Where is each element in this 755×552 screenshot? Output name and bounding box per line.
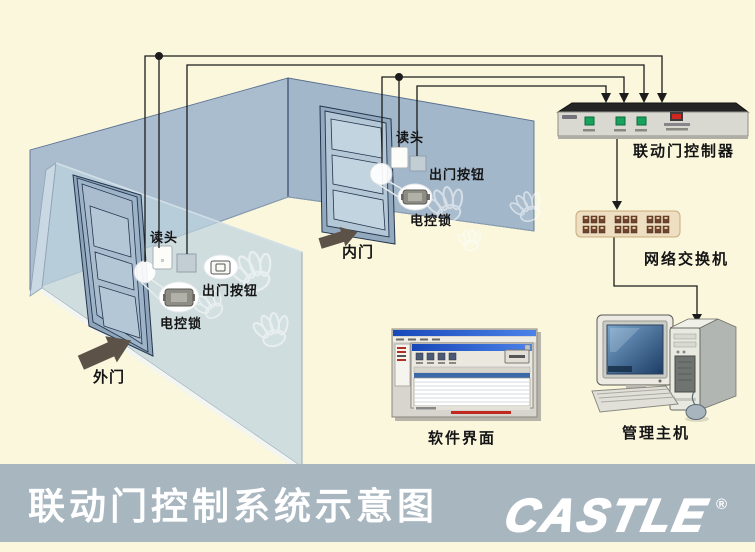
- switch-label: 网络交换机: [644, 248, 729, 269]
- inner-lock-bubble: [398, 184, 432, 210]
- software-label: 软件界面: [428, 427, 496, 448]
- inner-reader-label: 读头: [396, 127, 424, 146]
- inner-exit-button-label: 出门按钮: [429, 164, 485, 183]
- inner-door-label: 内门: [342, 241, 374, 262]
- outer-exit-button-device: [177, 254, 196, 272]
- outer-door-label: 外门: [93, 366, 125, 387]
- controller-label: 联动门控制器: [633, 140, 735, 161]
- brand-logo-text: CASTLE: [500, 488, 713, 542]
- outer-reader-label: 读头: [150, 227, 178, 246]
- network-switch-device: [576, 211, 680, 237]
- inner-lock-label: 电控锁: [410, 210, 452, 229]
- outer-exit-button-bubble: [204, 255, 238, 279]
- software-window: [392, 329, 541, 421]
- outer-exit-button-label: 出门按钮: [202, 280, 258, 299]
- inner-reader-device: [391, 147, 408, 168]
- diagram-stage: 读头 出门按钮 电控锁 读头 出门按钮 电控锁 内门 外门 联动门控制器 网络交…: [0, 0, 755, 552]
- outer-reader-device: [153, 246, 172, 269]
- door-controller-device: [558, 103, 748, 139]
- outer-lock-label: 电控锁: [160, 313, 202, 332]
- brand-logo: CASTLE®: [506, 488, 719, 542]
- host-label: 管理主机: [622, 422, 690, 443]
- diagram-title: 联动门控制系统示意图: [28, 488, 438, 527]
- registered-trademark-icon: ®: [716, 496, 727, 513]
- management-host-computer: [592, 315, 736, 422]
- outer-lock-bubble: [159, 282, 199, 312]
- inner-exit-button-device: [410, 156, 426, 171]
- footer-banner: 联动门控制系统示意图 CASTLE®: [0, 464, 755, 542]
